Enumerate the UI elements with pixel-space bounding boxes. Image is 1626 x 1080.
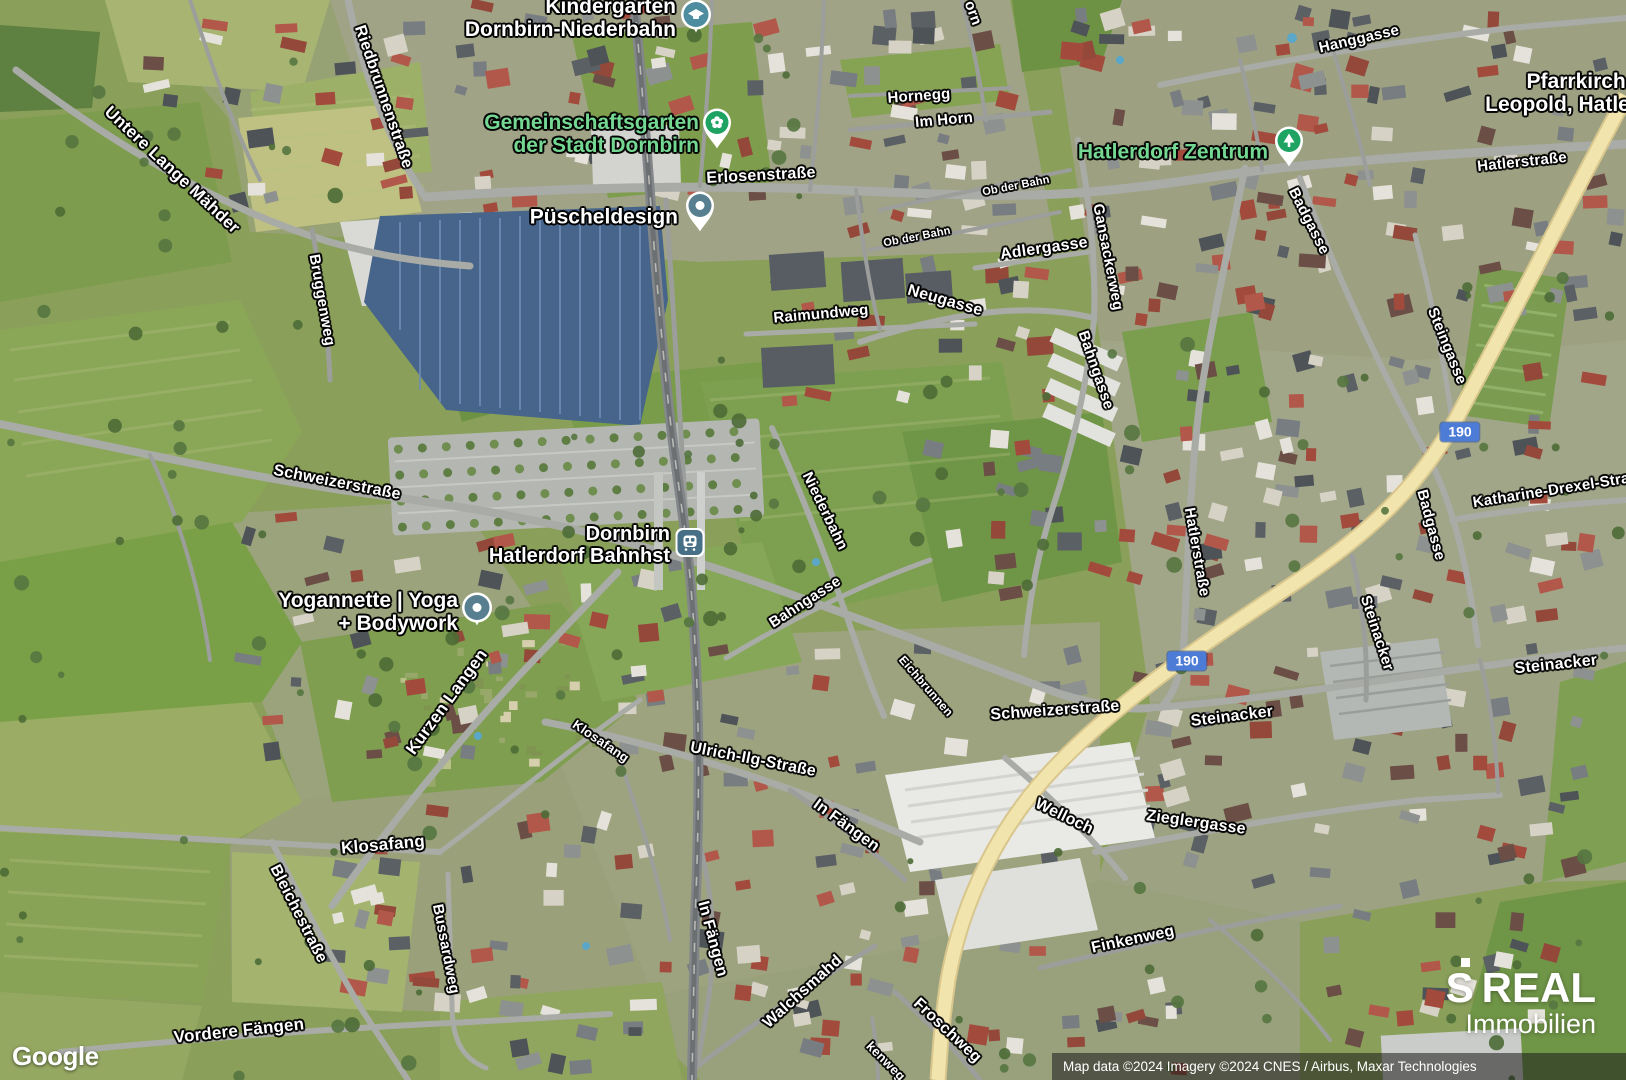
street-label-badgasse: Badgasse: [1413, 488, 1448, 562]
poi-label-line: Püscheldesign: [530, 205, 678, 228]
poi-pin-bahnhst-train-icon[interactable]: [673, 526, 707, 565]
poi-label-line: Leopold, Hatlerdorf: [1485, 93, 1626, 116]
sreal-watermark: S REAL Immobilien: [1446, 967, 1596, 1040]
sreal-s-mark: S: [1446, 967, 1474, 1009]
street-label-ob-der-bahn: Ob der Bahn: [882, 225, 951, 250]
street-label-badgasse: Badgasse: [1285, 185, 1333, 257]
street-label-kenweg: kenweg: [863, 1038, 908, 1080]
street-label-schweizerstra-e: Schweizerstraße: [990, 698, 1120, 725]
sreal-sub: Immobilien: [1446, 1009, 1596, 1040]
poi-label-line: Kindergarten: [465, 0, 676, 18]
route-badge-190-2: 190: [1167, 652, 1206, 671]
google-logo[interactable]: Google: [12, 1041, 99, 1072]
street-label-steinacker: Steinacker: [1357, 593, 1397, 672]
street-label-bussardweg: Bussardweg: [429, 903, 463, 996]
poi-label-kindergarten[interactable]: KindergartenDornbirn-Niederbahn: [465, 0, 676, 41]
street-label-orn: orn: [961, 0, 985, 28]
street-label-bahngasse: Bahngasse: [766, 573, 844, 632]
poi-pin-hatlerdorf-zentrum-tree-icon[interactable]: [1272, 124, 1306, 173]
street-label-eichbrunnen: Eichbrunnen: [896, 653, 956, 719]
street-label-klosafang: Klosafang: [570, 717, 632, 766]
sreal-brand: REAL: [1482, 967, 1596, 1009]
street-label-katharine-drexel-stra-e: Katharine-Drexel-Straße: [1472, 467, 1626, 511]
poi-label-line: Hatlerdorf Bahnhst: [489, 545, 670, 567]
street-label-zieglergasse: Zieglergasse: [1145, 807, 1247, 839]
poi-label-line: Yogannette | Yoga: [278, 589, 458, 612]
street-label-im-horn: Im Horn: [914, 109, 973, 131]
poi-label-hatlerdorf-zentrum[interactable]: Hatlerdorf Zentrum: [1078, 140, 1268, 163]
street-label-hanggasse: Hanggasse: [1317, 22, 1401, 57]
street-label-gansackerweg: Gansackerweg: [1089, 202, 1126, 312]
poi-label-line: + Bodywork: [278, 612, 458, 635]
street-label-ob-der-bahn: Ob der Bahn: [981, 174, 1050, 199]
street-label-in-f-ngen: In Fängen: [693, 899, 730, 978]
street-label-walchsmahd: Walchsmahd: [760, 952, 846, 1032]
poi-label-puescheldesign[interactable]: Püscheldesign: [530, 205, 678, 228]
street-label-vordere-f-ngen: Vordere Fängen: [173, 1014, 305, 1048]
street-label-froschweg: Froschweg: [909, 995, 984, 1067]
street-label-erlosenstra-e: Erlosenstraße: [706, 164, 816, 188]
poi-pin-gemeinschaftsgarten-flower-icon[interactable]: [700, 106, 734, 155]
poi-pin-kindergarten-school-icon[interactable]: [680, 0, 712, 40]
street-label-schweizerstra-e: Schweizerstraße: [272, 462, 402, 504]
attribution-text: Map data ©2024 Imagery ©2024 CNES / Airb…: [1063, 1059, 1477, 1074]
poi-label-line: der Stadt Dornbirn: [484, 134, 699, 157]
poi-pin-puescheldesign-dot-icon[interactable]: [683, 189, 717, 238]
street-label-hatlerstra-e: Hatlerstraße: [1476, 149, 1567, 175]
street-label-bruggenweg: Bruggenweg: [306, 253, 339, 347]
street-label-untere-lange-m-hder: Untere Lange Mähder: [100, 102, 244, 238]
poi-pin-yogannette-dot-icon[interactable]: [461, 588, 493, 633]
street-label-niederbahn: Niederbahn: [799, 469, 851, 552]
street-label-neugasse: Neugasse: [905, 282, 984, 321]
poi-label-line: Hatlerdorf Zentrum: [1078, 140, 1268, 163]
street-label-klosafang: Klosafang: [340, 831, 425, 858]
street-label-hatlerstra-e: Hatlerstraße: [1181, 506, 1213, 598]
street-label-steinacker: Steinacker: [1190, 703, 1275, 731]
street-label-in-f-ngen: In Fängen: [809, 796, 882, 856]
street-label-raimundweg: Raimundweg: [773, 301, 869, 326]
street-label-kurzen-langen: Kurzen Langen: [402, 645, 492, 758]
poi-label-gemeinschaftsgarten[interactable]: Gemeinschaftsgartender Stadt Dornbirn: [484, 111, 699, 157]
map-labels-layer: Untere Lange MähderRiedbrunnenstraßeBrug…: [0, 0, 1626, 1080]
street-label-steingasse: Steingasse: [1424, 305, 1470, 387]
street-label-finkenweg: Finkenweg: [1090, 922, 1176, 957]
street-label-hornegg: Hornegg: [887, 85, 951, 106]
street-label-bleichestra-e: Bleichestraße: [266, 862, 331, 966]
street-label-ulrich-ilg-stra-e: Ulrich-Ilg-Straße: [689, 739, 818, 781]
poi-label-bahnhst[interactable]: DornbirnHatlerdorf Bahnhst: [489, 523, 670, 567]
street-label-steinacker: Steinacker: [1514, 652, 1598, 679]
route-badge-190-1: 190: [1440, 423, 1479, 442]
poi-label-pfarrkirche[interactable]: PfarrkircheLeopold, Hatlerdorf: [1485, 70, 1626, 116]
poi-label-yogannette[interactable]: Yogannette | Yoga+ Bodywork: [278, 589, 458, 635]
street-label-adlergasse: Adlergasse: [999, 234, 1089, 264]
poi-label-line: Dornbirn-Niederbahn: [465, 18, 676, 41]
poi-label-line: Gemeinschaftsgarten: [484, 111, 699, 134]
street-label-welloch: Welloch: [1032, 795, 1096, 839]
poi-label-line: Dornbirn: [489, 523, 670, 545]
attribution-bar: Map data ©2024 Imagery ©2024 CNES / Airb…: [1052, 1053, 1626, 1080]
map-viewport[interactable]: Untere Lange MähderRiedbrunnenstraßeBrug…: [0, 0, 1626, 1080]
street-label-riedbrunnenstra-e: Riedbrunnenstraße: [350, 23, 416, 171]
street-label-bahngasse: Bahngasse: [1075, 329, 1118, 412]
poi-label-line: Pfarrkirche: [1485, 70, 1626, 93]
